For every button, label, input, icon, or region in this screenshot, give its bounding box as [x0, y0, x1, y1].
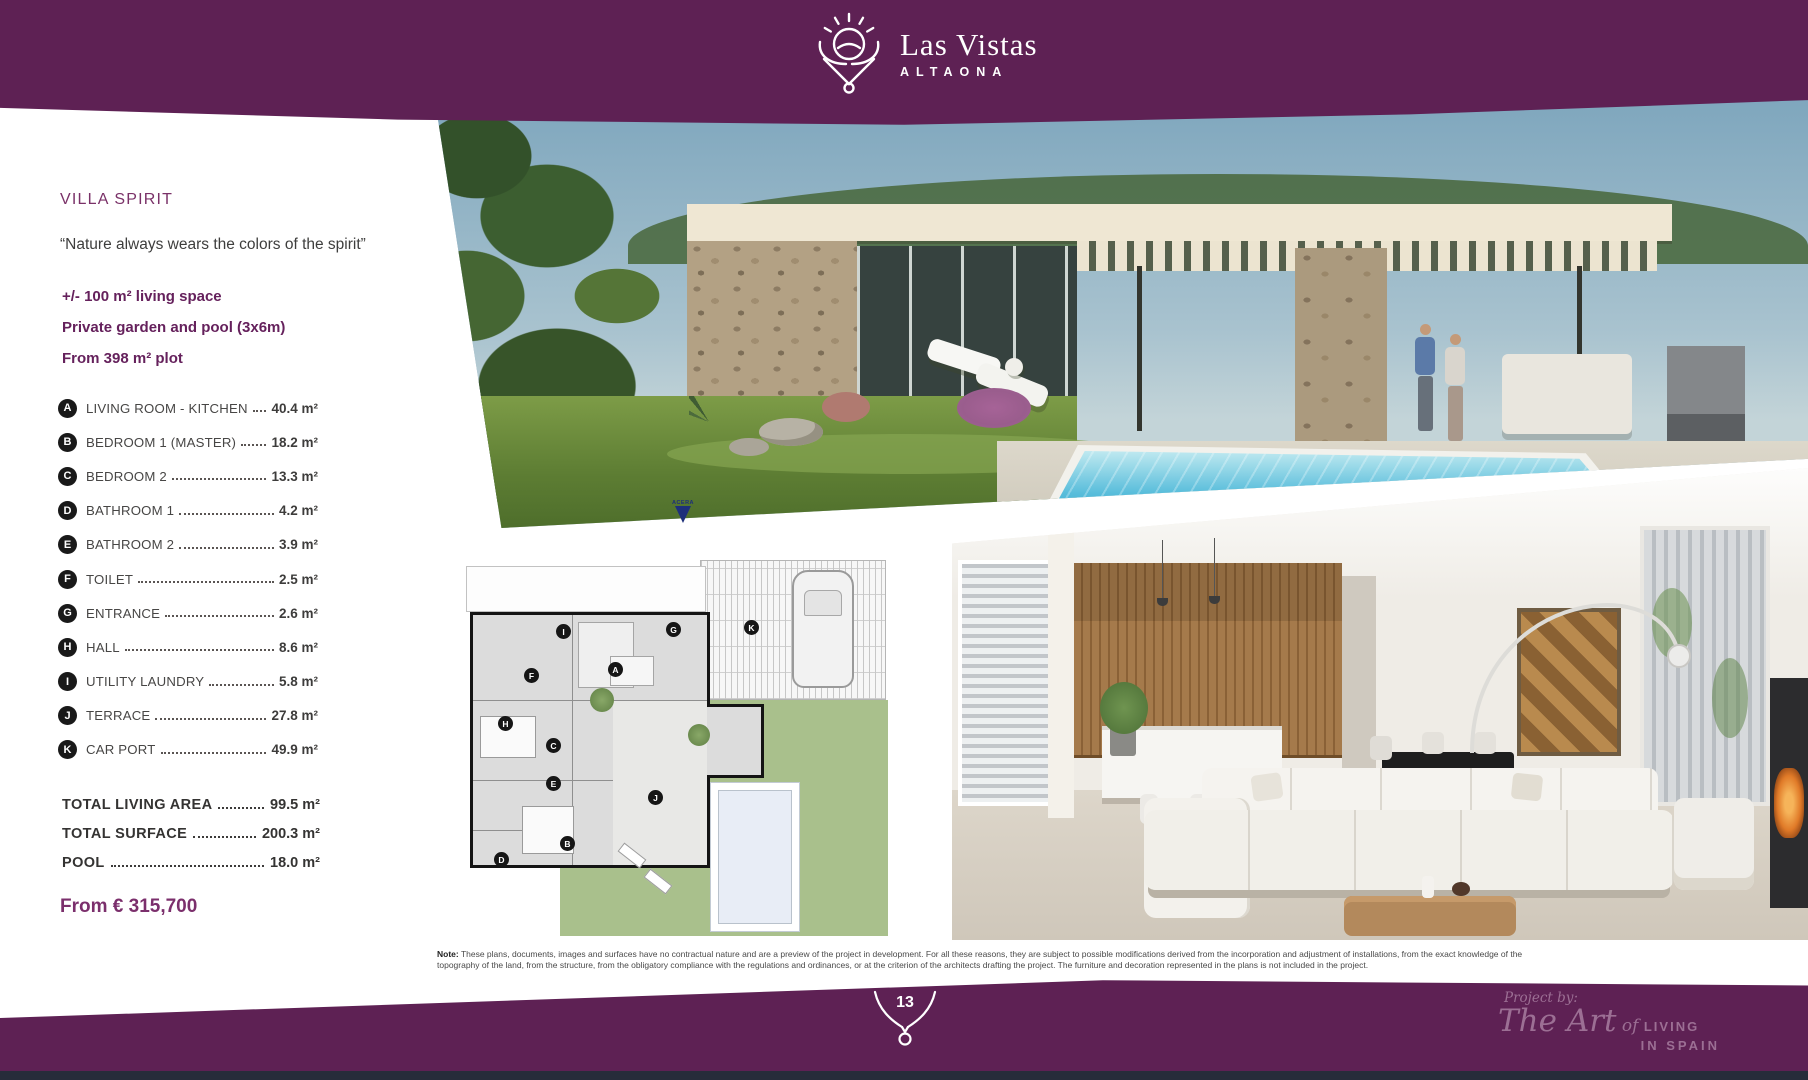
highlight-garden-pool: Private garden and pool (3x6m)	[62, 312, 285, 343]
total-label: TOTAL LIVING AREA	[62, 797, 212, 813]
wall-column	[1048, 528, 1074, 818]
dotted-leader	[253, 410, 267, 412]
dining-chair	[1370, 736, 1392, 760]
room-row: K CAR PORT 49.9 m²	[58, 733, 318, 767]
person-woman	[1442, 334, 1468, 441]
page-number: 13	[869, 994, 941, 1012]
brand-name: Las Vistas	[900, 28, 1038, 62]
room-area: 4.2 m²	[279, 503, 318, 518]
room-label: CAR PORT	[86, 742, 156, 757]
outdoor-kitchen	[1667, 346, 1745, 442]
brand-logo: Las Vistas ALTAONA	[812, 12, 1038, 94]
room-row: H HALL 8.6 m²	[58, 630, 318, 664]
plan-badge-F: F	[524, 668, 539, 683]
room-label: TOILET	[86, 572, 133, 587]
room-row: J TERRACE 27.8 m²	[58, 699, 318, 733]
plan-pool	[718, 790, 792, 924]
coral-shrub	[822, 392, 870, 422]
pillow	[1511, 773, 1544, 802]
dotted-leader	[193, 836, 256, 838]
villa-quote: “Nature always wears the colors of the s…	[60, 236, 366, 254]
arc-floor-lamp	[1452, 538, 1712, 758]
highlights: +/- 100 m² living space Private garden a…	[62, 281, 285, 374]
dotted-leader	[165, 615, 274, 617]
plan-badge-C: C	[546, 738, 561, 753]
note-text: These plans, documents, images and surfa…	[437, 949, 1522, 970]
room-area: 40.4 m²	[271, 401, 318, 416]
plan-badge-A: A	[608, 662, 623, 677]
room-key-badge: C	[58, 467, 77, 486]
room-label: LIVING ROOM - KITCHEN	[86, 401, 248, 416]
boulder	[759, 418, 823, 446]
sidewalk-marker: ACERA	[668, 500, 698, 528]
highlight-living-space: +/- 100 m² living space	[62, 281, 285, 312]
dotted-leader	[111, 865, 264, 867]
sun-hands-icon	[812, 12, 886, 94]
legs	[1418, 376, 1433, 431]
logo-of-text: of	[1617, 1016, 1644, 1036]
plan-plant	[590, 688, 614, 712]
room-label: BATHROOM 2	[86, 537, 174, 552]
total-area: 200.3 m²	[262, 826, 320, 842]
note-label: Note:	[437, 949, 459, 959]
brochure-page: ACERA I F G A K H C E J B D	[0, 0, 1808, 1080]
room-area: 5.8 m²	[279, 674, 318, 689]
torso	[1445, 347, 1465, 385]
room-row: F TOILET 2.5 m²	[58, 562, 318, 596]
plan-plant	[688, 724, 710, 746]
head	[1450, 334, 1461, 345]
vase	[1422, 876, 1434, 898]
room-label: TERRACE	[86, 708, 150, 723]
boulder	[729, 438, 769, 456]
room-key-badge: B	[58, 433, 77, 452]
room-area: 27.8 m²	[271, 708, 318, 723]
window-plant	[1712, 658, 1748, 738]
dotted-leader	[155, 718, 266, 720]
plan-badge-E: E	[546, 776, 561, 791]
total-area: 99.5 m²	[270, 797, 320, 813]
highlight-plot: From 398 m² plot	[62, 343, 285, 374]
logo-caps-text: LIVING	[1644, 1019, 1699, 1034]
room-area: 2.5 m²	[279, 572, 318, 587]
totals-list: TOTAL LIVING AREA 99.5 m² TOTAL SURFACE …	[62, 791, 320, 877]
interior-wall	[473, 780, 613, 781]
bowl	[1452, 882, 1470, 896]
room-area: 13.3 m²	[271, 469, 318, 484]
person-man	[1412, 324, 1438, 431]
room-list: A LIVING ROOM - KITCHEN 40.4 m² B BEDROO…	[58, 391, 318, 767]
pendant-cord	[1162, 540, 1163, 600]
purple-shrub	[957, 388, 1031, 428]
stone-pillar	[1295, 248, 1387, 444]
head	[1420, 324, 1431, 335]
room-key-badge: A	[58, 399, 77, 418]
floor-plan: ACERA I F G A K H C E J B D	[460, 538, 892, 940]
pergola-post	[1137, 266, 1142, 431]
room-key-badge: K	[58, 740, 77, 759]
total-row: TOTAL LIVING AREA 99.5 m²	[62, 791, 320, 820]
car-windshield	[804, 590, 842, 616]
room-row: I UTILITY LAUNDRY 5.8 m²	[58, 665, 318, 699]
plan-badge-G: G	[666, 622, 681, 637]
sofa-seat	[1144, 810, 1674, 890]
villa-roof	[687, 204, 1672, 241]
total-label: TOTAL SURFACE	[62, 826, 187, 842]
legs	[1448, 386, 1463, 441]
room-label: ENTRANCE	[86, 606, 160, 621]
down-arrow-icon	[675, 506, 691, 523]
room-key-badge: G	[58, 604, 77, 623]
total-row: TOTAL SURFACE 200.3 m²	[62, 820, 320, 849]
room-key-badge: F	[58, 570, 77, 589]
total-row: POOL 18.0 m²	[62, 849, 320, 878]
room-key-badge: E	[58, 535, 77, 554]
art-of-living-logo: The Art of LIVING IN SPAIN	[1498, 1006, 1748, 1053]
dotted-leader	[241, 444, 266, 446]
brand-subtitle: ALTAONA	[900, 65, 1038, 79]
total-label: POOL	[62, 855, 105, 871]
dotted-leader	[179, 513, 274, 515]
pillow	[1250, 772, 1283, 802]
agave-plant	[689, 396, 729, 422]
room-label: UTILITY LAUNDRY	[86, 674, 204, 689]
room-label: BATHROOM 1	[86, 503, 174, 518]
room-key-badge: H	[58, 638, 77, 657]
torso	[1415, 337, 1435, 375]
room-area: 2.6 m²	[279, 606, 318, 621]
room-area: 49.9 m²	[271, 742, 318, 757]
room-row: B BEDROOM 1 (MASTER) 18.2 m²	[58, 425, 318, 459]
plan-badge-K: K	[744, 620, 759, 635]
fireplace-flame	[1774, 768, 1804, 838]
price: From € 315,700	[60, 896, 197, 918]
room-area: 8.6 m²	[279, 640, 318, 655]
legal-note: Note: These plans, documents, images and…	[437, 949, 1562, 971]
car	[792, 570, 854, 688]
dotted-leader	[125, 649, 274, 651]
page-title: VILLA SPIRIT	[60, 191, 173, 209]
roof-outline	[466, 566, 706, 612]
dotted-leader	[138, 581, 274, 583]
dotted-leader	[161, 752, 267, 754]
pendant-cord	[1214, 538, 1215, 598]
room-row: C BEDROOM 2 13.3 m²	[58, 459, 318, 493]
room-row: E BATHROOM 2 3.9 m²	[58, 528, 318, 562]
armchair	[1674, 798, 1754, 890]
brand-wordmark: Las Vistas ALTAONA	[900, 28, 1038, 79]
plan-badge-H: H	[498, 716, 513, 731]
dotted-leader	[209, 684, 274, 686]
room-label: BEDROOM 1 (MASTER)	[86, 435, 236, 450]
total-area: 18.0 m²	[270, 855, 320, 871]
left-window-blinds	[958, 560, 1052, 806]
indoor-plant	[1100, 682, 1148, 734]
room-row: A LIVING ROOM - KITCHEN 40.4 m²	[58, 391, 318, 425]
project-by-logo: Project by: The Art of LIVING IN SPAIN	[1498, 990, 1748, 1053]
logo-script-text: The Art	[1498, 1003, 1617, 1039]
dotted-leader	[218, 807, 264, 809]
outdoor-lounge-set	[1502, 354, 1632, 434]
room-area: 3.9 m²	[279, 537, 318, 552]
plan-badge-J: J	[648, 790, 663, 805]
room-area: 18.2 m²	[271, 435, 318, 450]
garden	[560, 868, 700, 936]
logo-location-text: IN SPAIN	[1498, 1038, 1720, 1053]
house-extension	[704, 704, 764, 778]
room-row: G ENTRANCE 2.6 m²	[58, 596, 318, 630]
dining-chair	[1422, 732, 1444, 754]
plan-badge-B: B	[560, 836, 575, 851]
side-table	[1005, 358, 1023, 376]
bottom-navy-strip	[0, 1071, 1808, 1080]
dotted-leader	[179, 547, 274, 549]
room-key-badge: D	[58, 501, 77, 520]
room-key-badge: J	[58, 706, 77, 725]
room-label: HALL	[86, 640, 120, 655]
room-key-badge: I	[58, 672, 77, 691]
room-label: BEDROOM 2	[86, 469, 167, 484]
coffee-table	[1344, 896, 1516, 936]
dotted-leader	[172, 478, 267, 480]
exterior-render-photo	[437, 96, 1808, 528]
plan-badge-I: I	[556, 624, 571, 639]
plan-badge-D: D	[494, 852, 509, 867]
page-marker: 13	[869, 988, 941, 1050]
interior-render-photo	[952, 468, 1808, 940]
room-row: D BATHROOM 1 4.2 m²	[58, 494, 318, 528]
